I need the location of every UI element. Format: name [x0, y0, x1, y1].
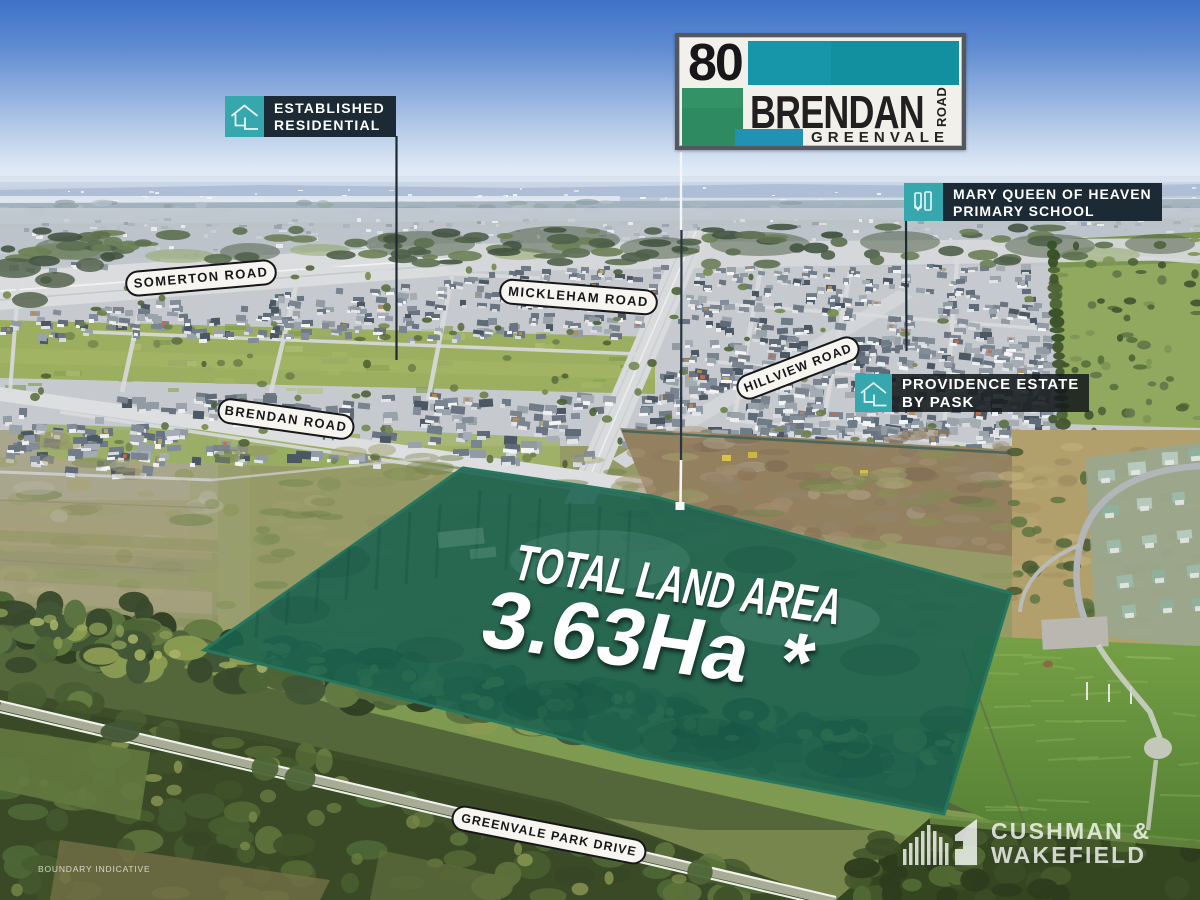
svg-text:WAKEFIELD: WAKEFIELD: [991, 842, 1146, 868]
svg-text:CUSHMAN &: CUSHMAN &: [991, 819, 1151, 844]
